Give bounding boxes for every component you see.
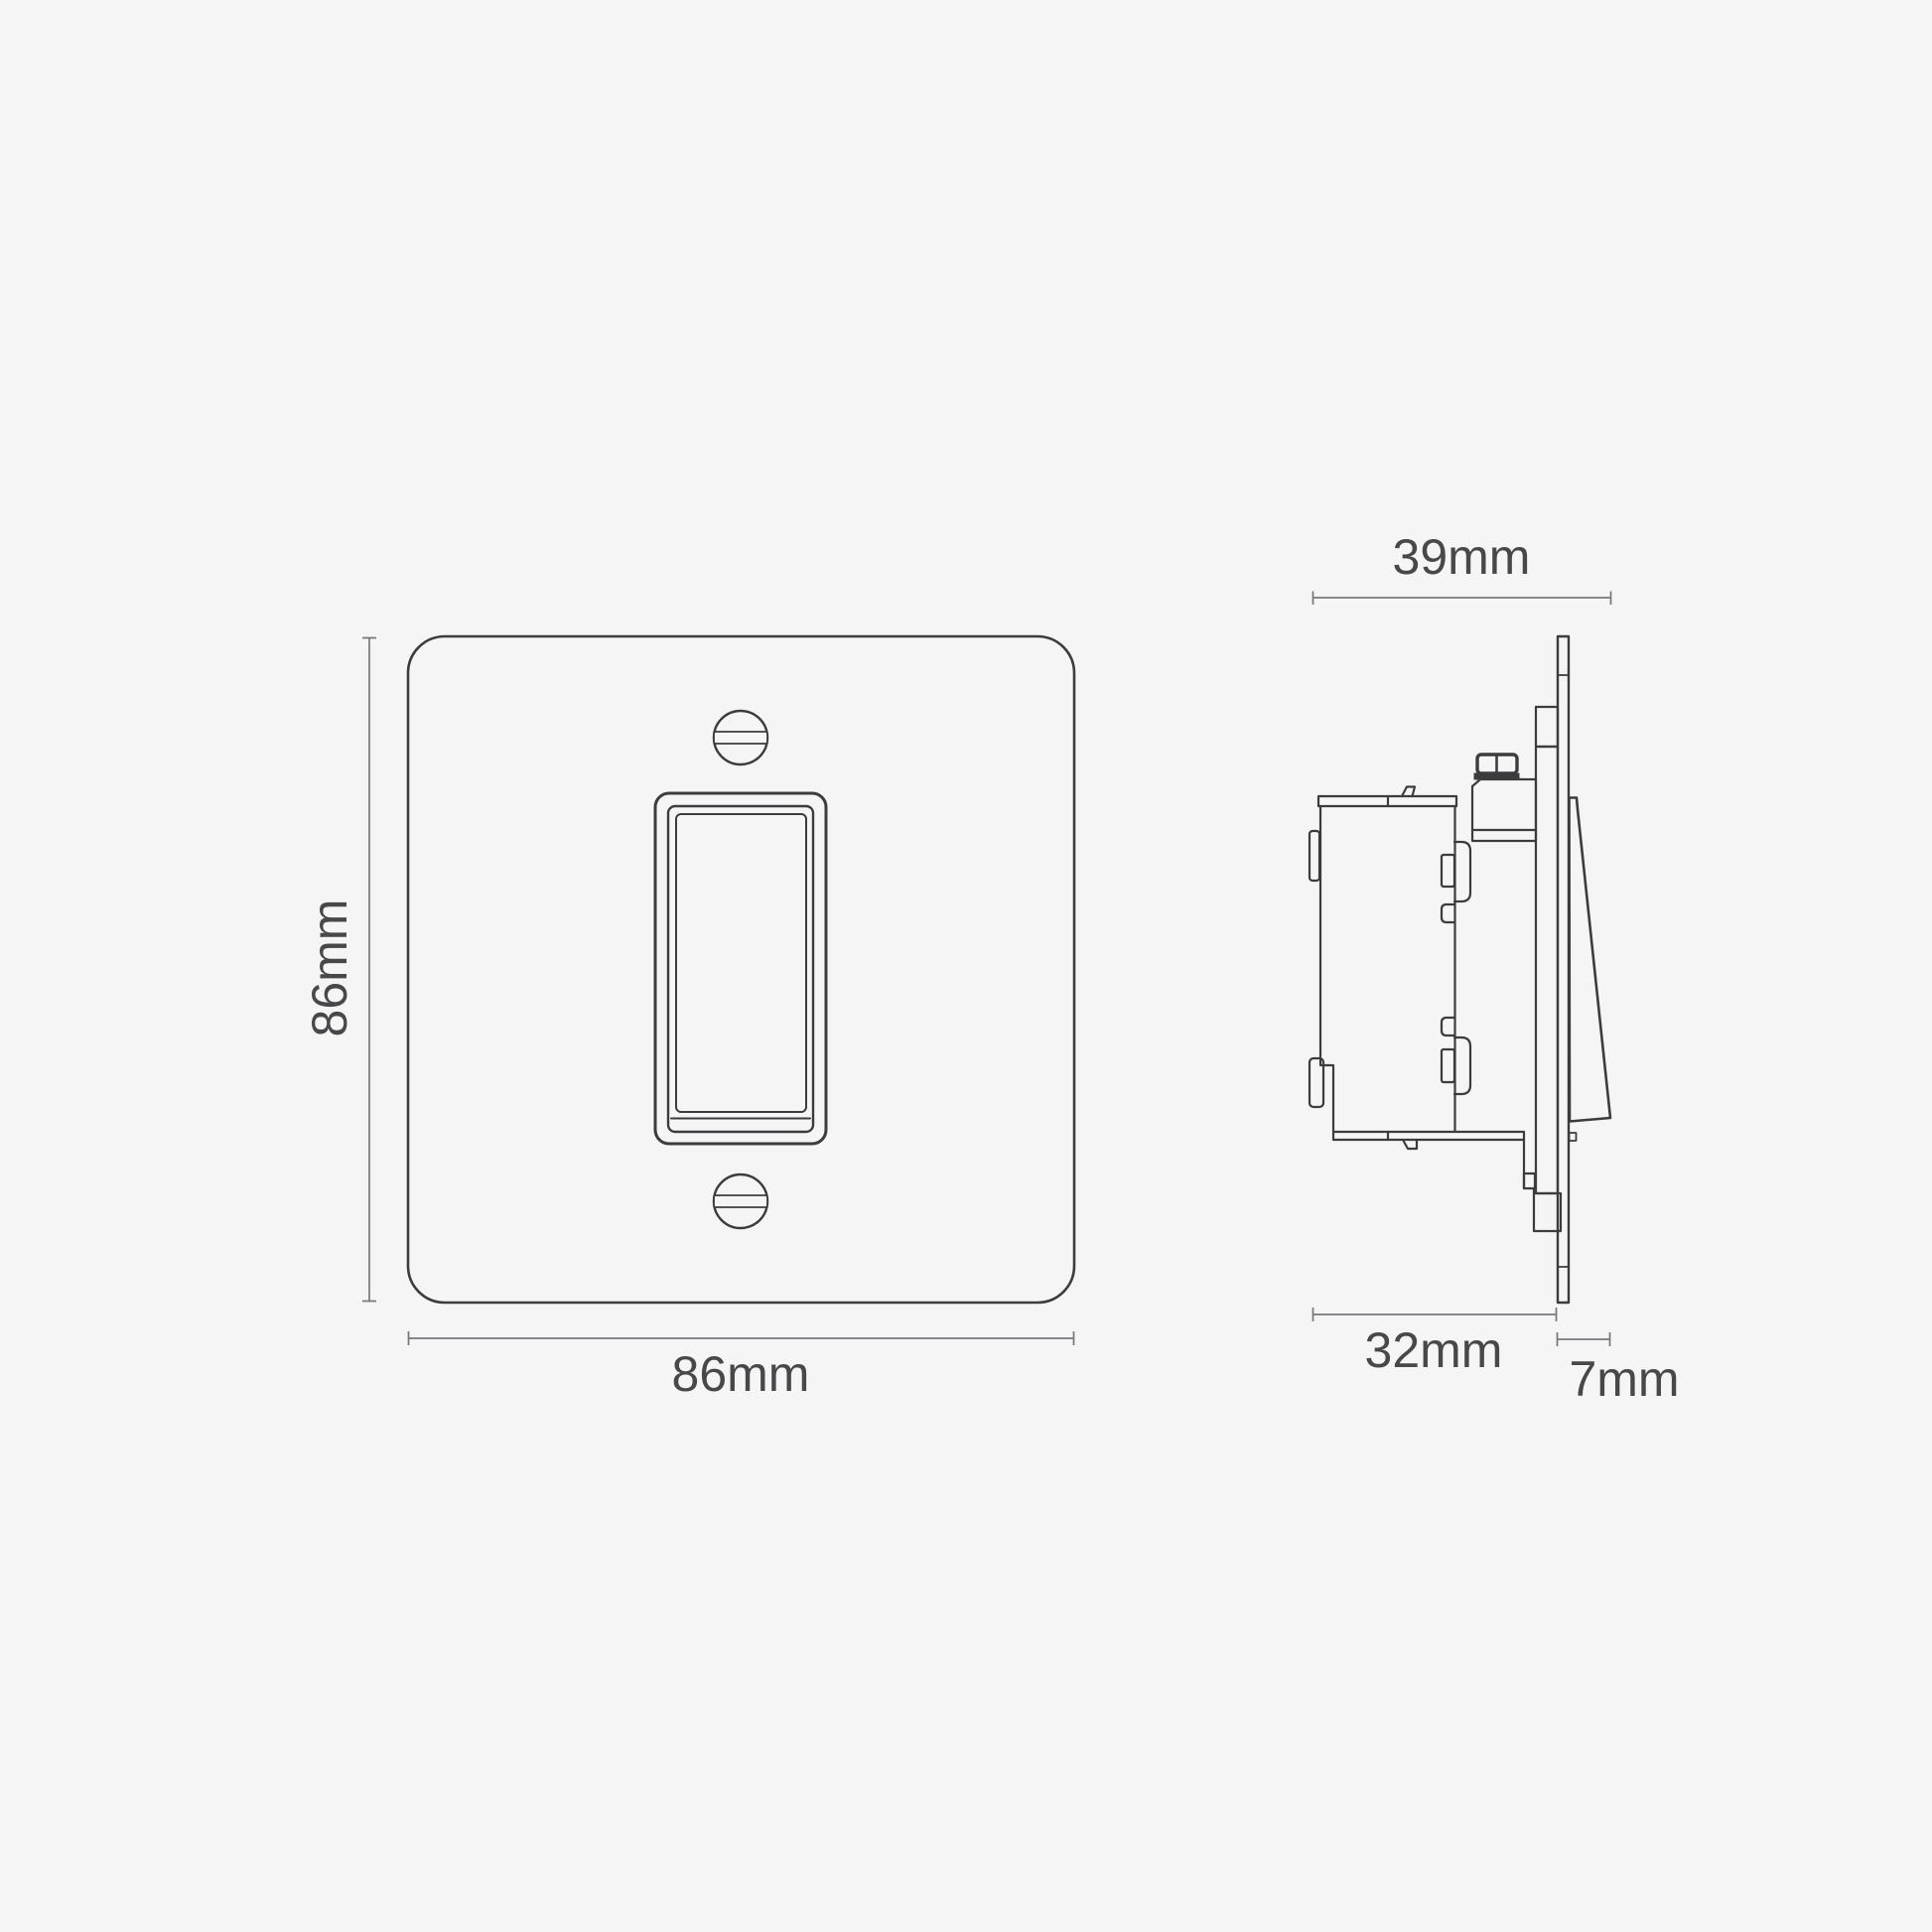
front-view xyxy=(408,636,1074,1303)
dim-label-plate-depth: 7mm xyxy=(1475,1348,1773,1410)
side-view xyxy=(1310,636,1610,1303)
rim-tab xyxy=(1402,787,1415,797)
diagram-canvas: 86mm 86mm 39mm 32mm 7mm xyxy=(0,0,1932,1932)
faceplate-profile xyxy=(1558,636,1569,1303)
dim-label-total-depth: 39mm xyxy=(1312,526,1610,588)
dim-label-front-height: 86mm xyxy=(299,819,360,1117)
dimension-line-front-height xyxy=(362,638,376,1302)
dim-label-front-width: 86mm xyxy=(592,1343,890,1405)
dimension-line-total-depth xyxy=(1312,592,1611,606)
switch-dimension-drawing xyxy=(0,0,1932,1932)
rocker-profile xyxy=(1570,798,1611,1142)
bottom-screw-icon xyxy=(714,1174,767,1228)
right-hook-upper xyxy=(1442,904,1454,922)
rocker-switch xyxy=(655,793,826,1144)
yoke-bracket xyxy=(1472,755,1536,841)
left-clip-upper xyxy=(1310,831,1319,881)
switch-module xyxy=(1524,707,1561,1231)
bottom-tab xyxy=(1403,1140,1417,1149)
dimension-annotations xyxy=(362,592,1611,1347)
top-screw-icon xyxy=(714,711,767,764)
right-hook-lower xyxy=(1442,1018,1454,1035)
